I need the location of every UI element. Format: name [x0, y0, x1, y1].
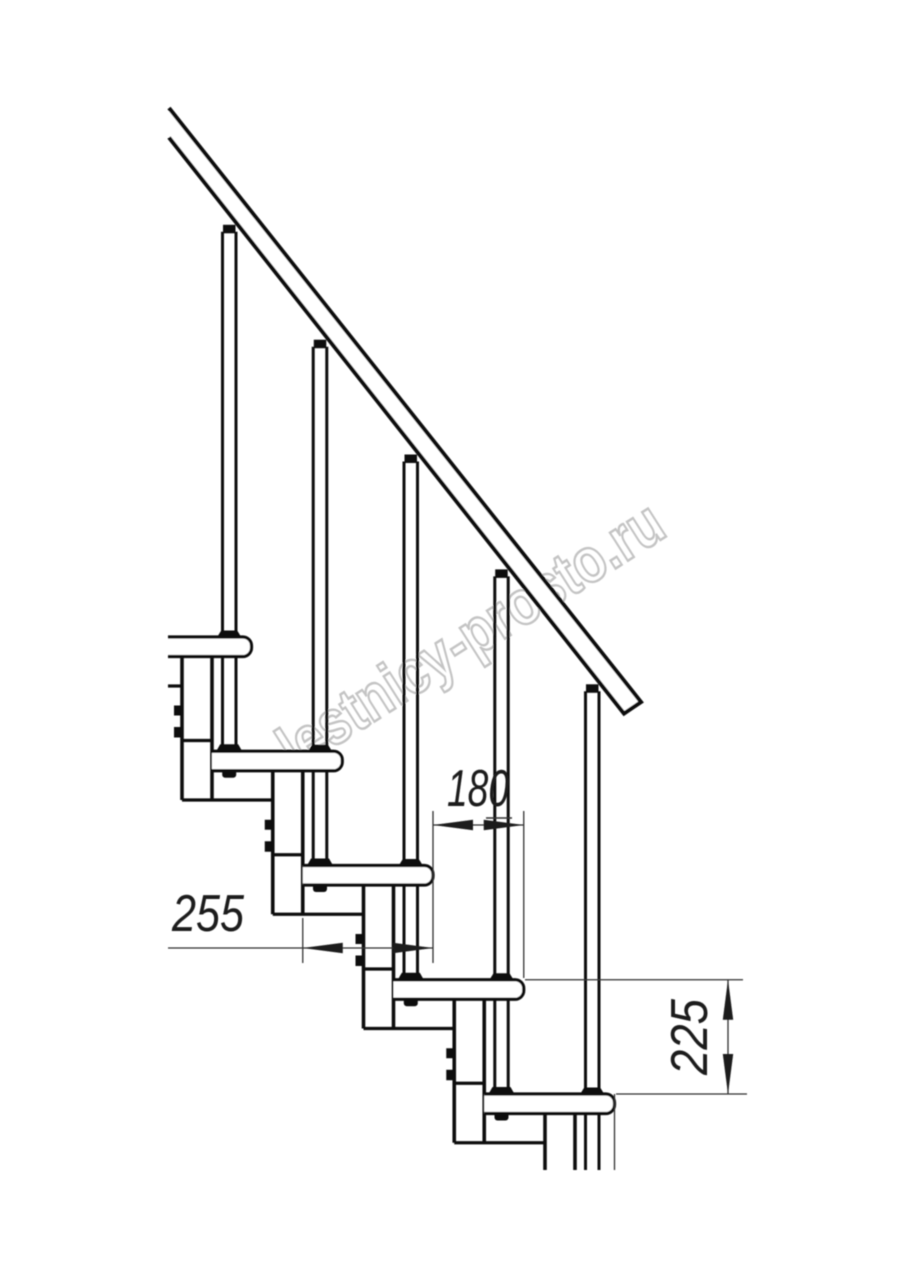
svg-text:225: 225 [661, 998, 719, 1076]
svg-text:255: 255 [171, 885, 245, 943]
svg-text:180: 180 [447, 760, 509, 818]
